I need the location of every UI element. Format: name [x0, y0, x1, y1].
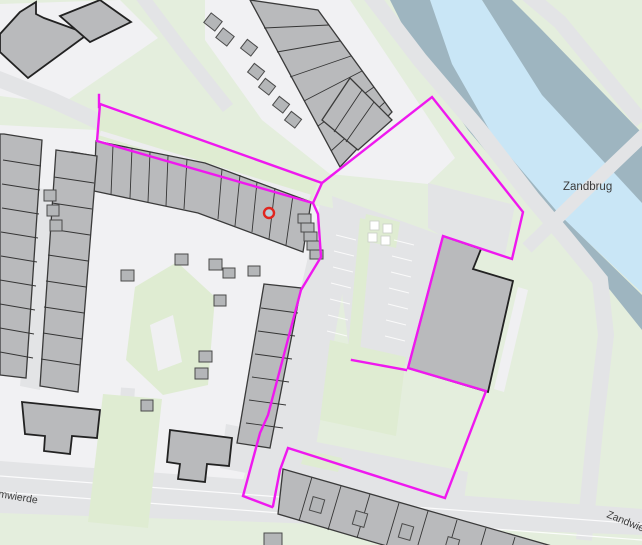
map-canvas[interactable]: Zandbrug mwierde Zandwie	[0, 0, 642, 545]
bridge-label: Zandbrug	[563, 181, 612, 193]
shed-bottom-center	[264, 533, 282, 545]
green-southwest-of-building	[320, 340, 406, 436]
map-viewport[interactable]: Zandbrug mwierde Zandwie	[0, 0, 642, 545]
selected-point-circle[interactable]	[264, 208, 274, 218]
